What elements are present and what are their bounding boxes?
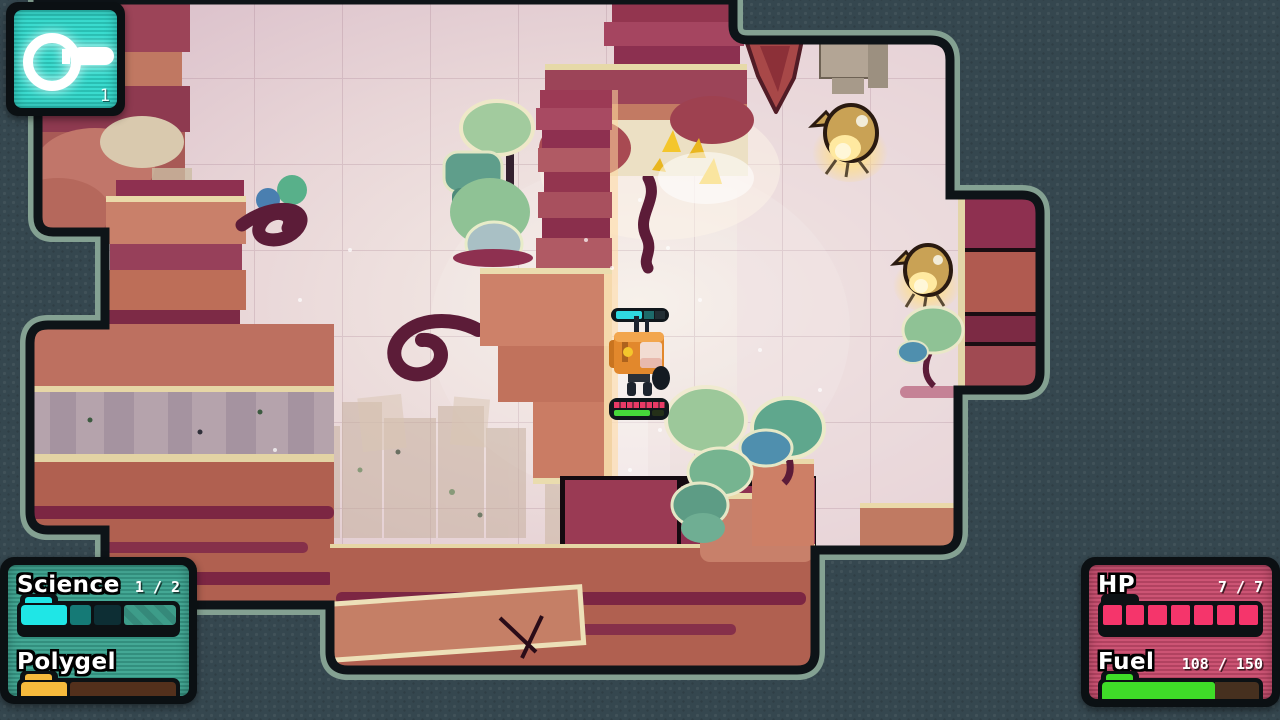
terrain-right-planks — [958, 195, 1040, 395]
terrain-left-ledge — [102, 180, 246, 332]
science-bar — [17, 601, 180, 637]
resources-panel: Science 1 / 2 Polygel — [0, 557, 197, 704]
vitals-screen: HP 7 / 7 Fuel 108 / 150 — [1089, 565, 1272, 699]
game-viewport[interactable]: 1 Science 1 / 2 Polygel HP 7 / 7 Fuel — [0, 0, 1280, 720]
polygel-bar — [17, 678, 180, 696]
vitals-panel: HP 7 / 7 Fuel 108 / 150 — [1081, 557, 1280, 707]
key-counter-screen: 1 — [14, 10, 117, 108]
key-counter-panel: 1 — [6, 2, 125, 116]
key-count: 1 — [100, 86, 110, 106]
fuel-bar — [1098, 678, 1263, 699]
hp-value: 7 / 7 — [1218, 576, 1263, 598]
resources-screen: Science 1 / 2 Polygel — [8, 565, 189, 696]
science-value: 1 / 2 — [135, 576, 180, 598]
fuel-value: 108 / 150 — [1182, 653, 1263, 675]
hp-bar — [1098, 601, 1263, 637]
